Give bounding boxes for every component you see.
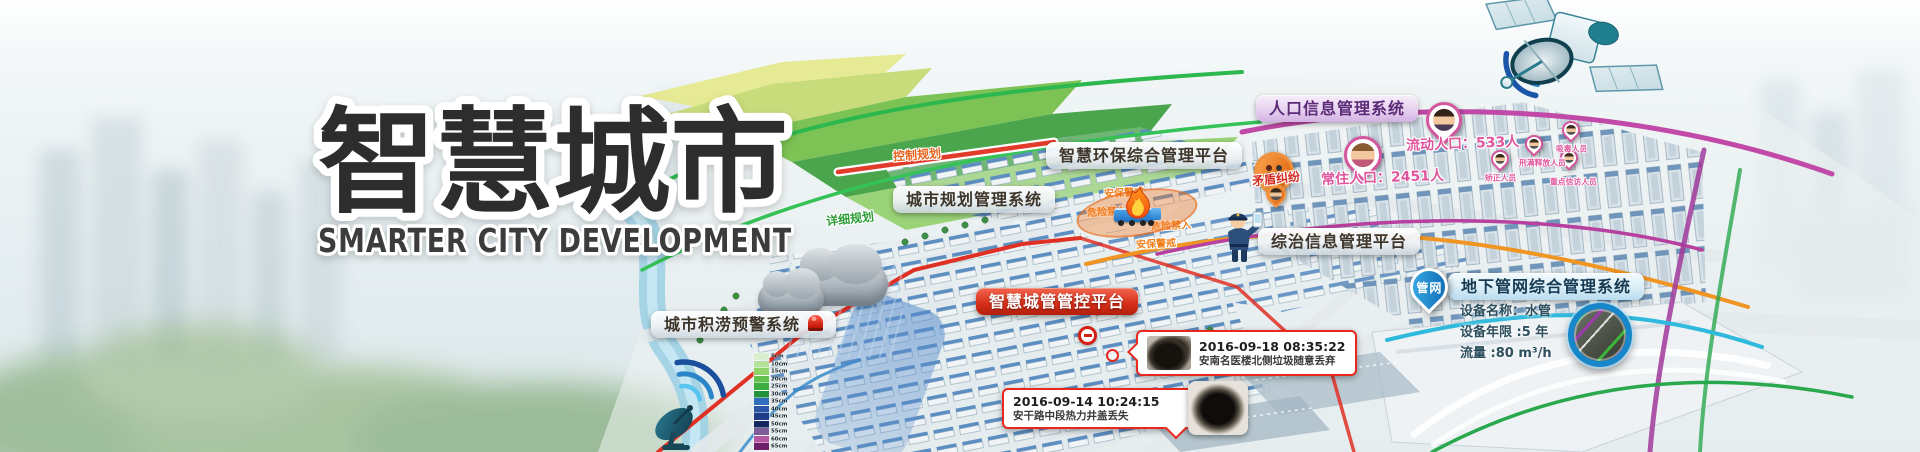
legend-row: 10cm	[754, 361, 798, 369]
text-pin-petitioner: 重点信访人员	[1550, 175, 1597, 187]
legend-swatch	[754, 368, 769, 375]
incident-time: 2016-09-18 08:35:22	[1199, 339, 1346, 354]
legend-row: 55cm	[754, 428, 798, 436]
pin-correction-person	[1491, 150, 1509, 168]
smart-city-banner: 智慧城市 SMARTER CITY DEVELOPMENT 智慧环保综合管理平台…	[0, 0, 1920, 452]
text-pin-released-prisoner: 刑满释放人员	[1519, 156, 1566, 168]
avatar	[1495, 154, 1505, 164]
legend-swatch	[754, 428, 769, 435]
legend-label: 40cm	[771, 407, 787, 412]
legend-swatch	[754, 383, 769, 390]
pipe-device-age: 设备年限 :5 年	[1460, 322, 1552, 343]
male-avatar	[1433, 109, 1455, 131]
incident-time: 2016-09-14 10:24:15	[1013, 394, 1160, 409]
banner-title: 智慧城市 SMARTER CITY DEVELOPMENT	[300, 55, 860, 270]
legend-swatch	[754, 436, 769, 443]
legend-swatch	[754, 413, 769, 420]
label-pipe-network-system: 地下管网综合管理系统	[1448, 273, 1644, 300]
legend-swatch	[754, 398, 769, 405]
zone-text-control-plan: 控制规划	[892, 144, 941, 164]
label-env-platform: 智慧环保综合管理平台	[1046, 142, 1242, 169]
text-floating-population: 流动人口：533人	[1406, 131, 1520, 155]
legend-swatch	[754, 353, 769, 360]
female-avatar	[1351, 143, 1375, 167]
legend-label: 30cm	[771, 392, 787, 397]
pin-drug-user	[1562, 121, 1580, 139]
legend-row: 30cm	[754, 391, 798, 399]
text-resident-population: 常住人口：2451人	[1321, 165, 1445, 189]
label-flood-warning-system: 城市积涝预警系统	[651, 311, 836, 338]
pipe-device-name: 设备名称：水管	[1460, 301, 1552, 322]
legend-swatch	[754, 406, 769, 413]
legend-row: 50cm	[754, 421, 798, 429]
text-pin-correction-person: 矫正人员	[1485, 171, 1516, 183]
legend-row: 35cm	[754, 398, 798, 406]
incident-callout-manhole: 2016-09-14 10:24:15 安干路中段热力井盖丢失	[1002, 388, 1208, 429]
pipe-pin-text: 管网	[1416, 279, 1442, 296]
underground-pipe-magnifier	[1568, 303, 1632, 367]
legend-row: 5cm	[754, 353, 798, 361]
legend-row: 15cm	[754, 368, 798, 376]
garbage-photo	[1147, 336, 1191, 370]
legend-row: 45cm	[754, 413, 798, 421]
pipe-info-panel: 设备名称：水管 设备年限 :5 年 流量 :80 m³/h	[1460, 301, 1552, 364]
flood-label-text: 城市积涝预警系统	[664, 315, 800, 334]
label-governance-platform: 综治信息管理平台	[1258, 228, 1420, 255]
text-pin-drug-user: 吸毒人员	[1556, 142, 1587, 154]
incident-callout-garbage: 2016-09-18 08:35:22 安南名医楼北侧垃圾随意丢弃	[1136, 330, 1357, 376]
no-entry-sign	[1078, 326, 1097, 345]
wifi-arcs-icon	[677, 362, 723, 399]
police-officer-icon	[1215, 206, 1263, 264]
label-population-system: 人口信息管理系统	[1256, 95, 1418, 122]
pin-released-prisoner	[1525, 135, 1543, 153]
legend-label: 45cm	[771, 415, 787, 420]
legend-swatch	[754, 376, 769, 383]
page-title-zh: 智慧城市	[318, 96, 788, 229]
avatar	[1566, 125, 1576, 135]
legend-label: 20cm	[771, 377, 787, 382]
legend-label: 25cm	[771, 385, 787, 390]
legend-label: 50cm	[771, 422, 787, 427]
legend-label: 65cm	[771, 445, 787, 450]
satellite-dish-icon	[648, 346, 743, 452]
incident-desc: 安干路中段热力井盖丢失	[1013, 409, 1160, 423]
legend-label: 15cm	[771, 370, 787, 375]
incident-marker	[1106, 349, 1119, 362]
fire-icon	[1122, 186, 1156, 222]
avatar	[1270, 188, 1282, 200]
label-city-mgmt-platform: 智慧城管管控平台	[976, 288, 1138, 315]
manhole-photo	[1188, 381, 1248, 435]
satellite-icon	[1462, 0, 1677, 118]
siren-icon	[808, 315, 823, 331]
legend-swatch	[754, 443, 769, 450]
legend-swatch	[754, 421, 769, 428]
legend-row: 40cm	[754, 406, 798, 414]
incident-desc: 安南名医楼北侧垃圾随意丢弃	[1199, 354, 1346, 368]
flood-depth-legend: 5cm10cm15cm20cm25cm30cm35cm40cm45cm50cm5…	[754, 353, 798, 451]
label-planning-system: 城市规划管理系统	[893, 186, 1055, 213]
legend-label: 5cm	[771, 355, 784, 360]
legend-swatch	[754, 391, 769, 398]
legend-row: 60cm	[754, 436, 798, 444]
legend-row: 25cm	[754, 383, 798, 391]
avatar	[1529, 139, 1539, 149]
pipe-flow: 流量 :80 m³/h	[1460, 343, 1552, 364]
legend-row: 20cm	[754, 376, 798, 384]
legend-label: 10cm	[771, 362, 787, 367]
legend-label: 55cm	[771, 430, 787, 435]
legend-label: 60cm	[771, 437, 787, 442]
legend-row: 65cm	[754, 443, 798, 451]
legend-swatch	[754, 361, 769, 368]
legend-label: 35cm	[771, 400, 787, 405]
zone-text-security-south: 安保警戒	[1136, 234, 1177, 251]
page-title-en: SMARTER CITY DEVELOPMENT	[318, 221, 792, 260]
